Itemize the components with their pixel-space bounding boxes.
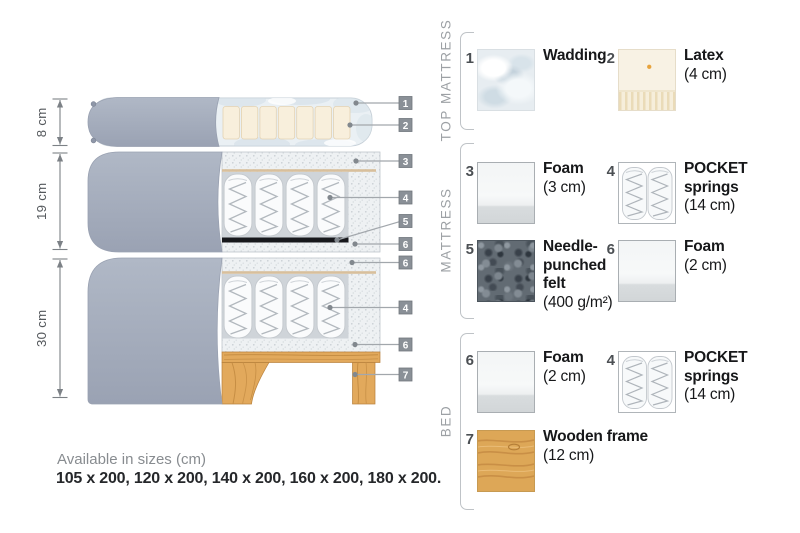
legend-item-number: 6 — [601, 241, 615, 258]
wood-grain-illustration — [478, 431, 534, 491]
fabric-cover — [88, 258, 222, 404]
section-title-top-mattress: TOP MATTRESS — [439, 19, 454, 142]
legend-item-number: 2 — [601, 50, 615, 67]
foam-swatch — [477, 351, 535, 413]
dimension-19cm: 19 cm — [34, 153, 68, 250]
legend-item-number: 3 — [460, 163, 474, 180]
svg-text:6: 6 — [403, 240, 409, 251]
infographic-page: 8 cm 19 cm 30 cm 1 — [0, 0, 800, 533]
svg-text:4: 4 — [403, 303, 409, 314]
foam-swatch — [618, 240, 676, 302]
cover-button — [91, 138, 96, 143]
latex-blocks — [223, 107, 350, 140]
svg-text:7: 7 — [403, 370, 409, 381]
dimension-30cm: 30 cm — [34, 259, 68, 398]
wadding-swatch — [477, 49, 535, 111]
legend-item-label: Foam (2 cm) — [684, 238, 764, 275]
dimension-8cm: 8 cm — [34, 99, 68, 146]
bed-diagram — [88, 258, 380, 404]
svg-text:5: 5 — [403, 217, 409, 228]
fabric-cover — [88, 98, 219, 147]
legend-item-number: 4 — [601, 352, 615, 369]
available-sizes-heading: Available in sizes (cm) — [57, 451, 206, 468]
available-sizes-list: 105 x 200, 120 x 200, 140 x 200, 160 x 2… — [56, 470, 441, 488]
legend-item-label: Wooden frame (12 cm) — [543, 428, 693, 465]
section-title-mattress: MATTRESS — [439, 187, 454, 272]
svg-text:4: 4 — [403, 193, 409, 204]
legend-item-number: 1 — [460, 50, 474, 67]
dimension-label: 8 cm — [34, 107, 49, 137]
mattress-diagram — [88, 152, 380, 252]
felt-layer — [222, 238, 349, 243]
legend-item-label: POCKET springs (14 cm) — [684, 349, 764, 405]
legend-item-number: 5 — [460, 241, 474, 258]
pocket-springs-swatch — [618, 162, 676, 224]
svg-text:6: 6 — [403, 258, 409, 269]
foam-swatch — [477, 162, 535, 224]
dimension-label: 30 cm — [34, 310, 49, 347]
legend-item-label: Latex (4 cm) — [684, 47, 764, 84]
wooden-frame — [222, 352, 380, 404]
legend-item-label: POCKET springs (14 cm) — [684, 160, 764, 216]
pocket-springs-illustration — [619, 352, 675, 412]
section-title-bed: BED — [439, 404, 454, 437]
pocket-springs-illustration — [619, 163, 675, 223]
wood-swatch — [477, 430, 535, 492]
svg-text:2: 2 — [403, 121, 409, 132]
svg-text:1: 1 — [403, 99, 409, 110]
legend-item-number: 6 — [460, 352, 474, 369]
svg-text:6: 6 — [403, 340, 409, 351]
cover-button — [91, 102, 96, 107]
svg-text:3: 3 — [403, 157, 409, 168]
legend-item-number: 4 — [601, 163, 615, 180]
pocket-springs-swatch — [618, 351, 676, 413]
top-mattress-diagram — [88, 93, 377, 151]
legend-item-number: 7 — [460, 431, 474, 448]
felt-swatch — [477, 240, 535, 302]
fabric-cover — [88, 152, 222, 252]
latex-swatch — [618, 49, 676, 111]
dimension-label: 19 cm — [34, 183, 49, 220]
section-bracket — [460, 32, 474, 130]
